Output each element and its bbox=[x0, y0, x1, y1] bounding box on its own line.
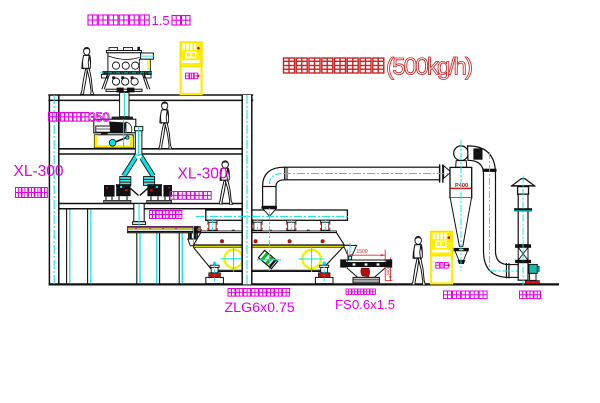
svg-text:350: 350 bbox=[89, 110, 110, 125]
svg-text:XL-300: XL-300 bbox=[178, 166, 228, 183]
svg-text:FS0.6x1.5: FS0.6x1.5 bbox=[335, 297, 395, 312]
svg-text:ZLG6x0.75: ZLG6x0.75 bbox=[225, 300, 295, 316]
svg-text:(500kg/h): (500kg/h) bbox=[386, 54, 472, 81]
svg-text:XL-300: XL-300 bbox=[14, 163, 64, 180]
svg-text:340: 340 bbox=[386, 268, 391, 276]
svg-text:1.5: 1.5 bbox=[152, 13, 170, 28]
svg-text:1500: 1500 bbox=[357, 249, 368, 255]
